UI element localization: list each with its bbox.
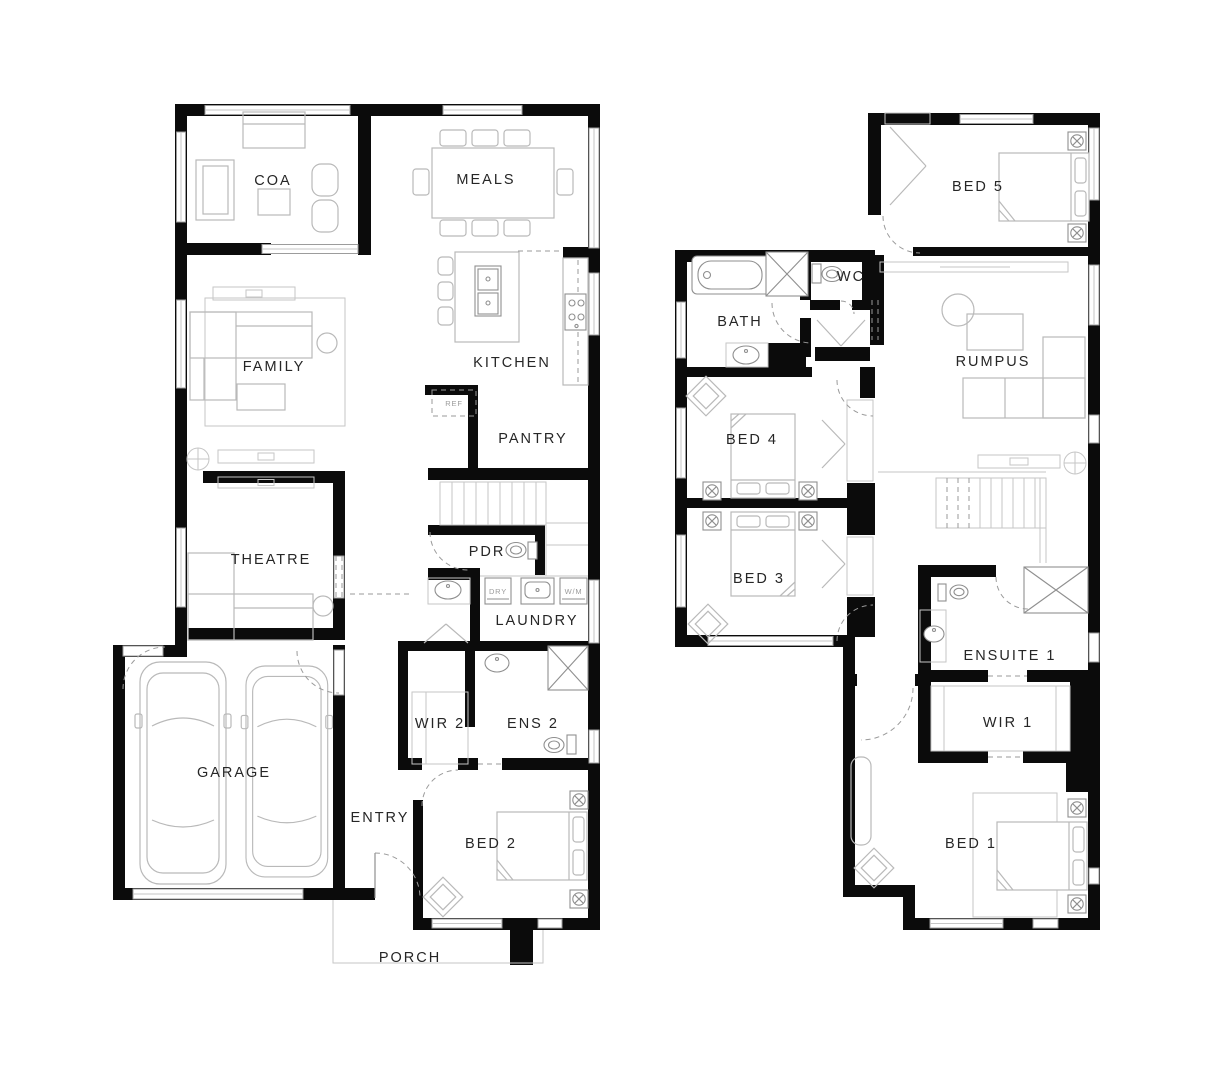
ceiling-fan-icon [187, 448, 209, 470]
bed4-furniture-icon [686, 376, 873, 500]
first-stairs [878, 472, 1046, 563]
room-label-bath: BATH [717, 314, 763, 330]
room-label-meals: MEALS [456, 172, 515, 188]
ceiling-fan-icon [1064, 452, 1086, 474]
room-label-bed5: BED 5 [952, 179, 1004, 195]
floor-plan-page: COA MEALS FAMILY KITCHEN PANTRY THEATRE … [0, 0, 1207, 1080]
room-label-garage: GARAGE [197, 765, 271, 781]
appliance-label-wm: W/M [565, 587, 583, 596]
first-floor-plan: BED 5 WC BATH RUMPUS BED 4 BED 3 ENSUITE… [675, 113, 1100, 930]
room-label-wc: WC [837, 269, 865, 285]
room-label-wir1: WIR 1 [983, 715, 1033, 731]
room-label-bed3: BED 3 [733, 571, 785, 587]
room-label-pdr: PDR [469, 544, 506, 560]
room-label-rumpus: RUMPUS [956, 354, 1031, 370]
family-furniture-icon [190, 287, 345, 426]
linen-doors-icon [424, 624, 468, 643]
room-label-bed2: BED 2 [465, 836, 517, 852]
room-label-theatre: THEATRE [231, 552, 312, 568]
room-label-coa: COA [254, 173, 291, 189]
room-label-pantry: PANTRY [498, 431, 567, 447]
bath-robe-doors-icon [817, 320, 865, 346]
coa-sofa-icon [196, 112, 338, 232]
room-label-entry: ENTRY [351, 810, 410, 826]
appliance-label-ref: REF [445, 399, 462, 408]
room-label-porch: PORCH [379, 950, 441, 966]
pdr-basin-icon [428, 578, 470, 604]
appliance-label-dry: DRY [489, 587, 507, 596]
floor-plan-canvas: COA MEALS FAMILY KITCHEN PANTRY THEATRE … [0, 0, 1207, 1080]
ens2-fixtures-icon [485, 646, 588, 754]
bed5-furniture-icon [885, 113, 1089, 242]
bath-linen-icon [766, 252, 808, 296]
room-label-bed4: BED 4 [726, 432, 778, 448]
room-label-bed1: BED 1 [945, 836, 997, 852]
room-label-family: FAMILY [243, 359, 306, 375]
room-label-ens2: ENS 2 [507, 716, 559, 732]
pdr-toilet-icon [506, 542, 537, 559]
room-label-ensuite1: ENSUITE 1 [964, 648, 1057, 664]
room-label-laundry: LAUNDRY [495, 613, 578, 629]
room-label-wir2: WIR 2 [415, 716, 465, 732]
bed2-furniture-icon [423, 791, 588, 917]
bath-basin-icon [726, 343, 768, 367]
ground-floor-plan: COA MEALS FAMILY KITCHEN PANTRY THEATRE … [113, 104, 600, 966]
kitchen-island-icon [438, 252, 519, 342]
bathtub-icon [692, 256, 772, 294]
room-label-kitchen: KITCHEN [473, 355, 551, 371]
